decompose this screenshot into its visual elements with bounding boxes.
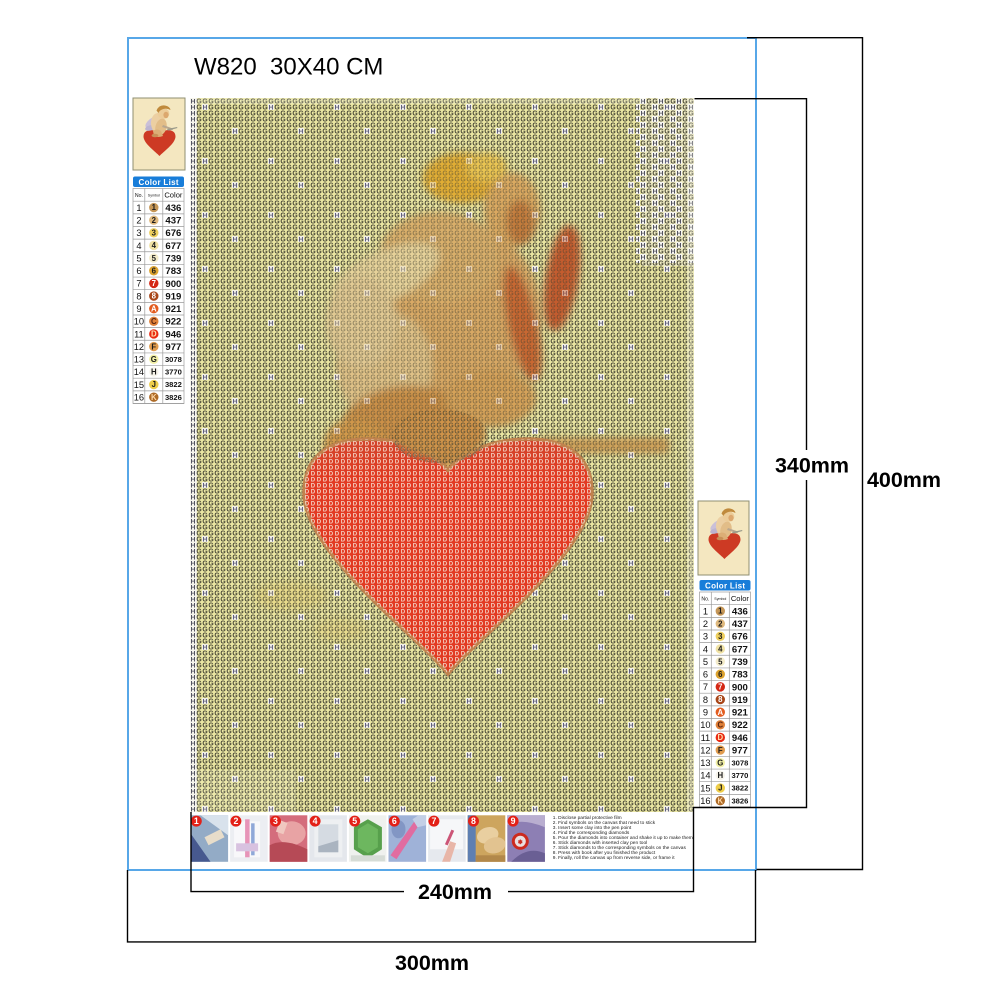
svg-text:946: 946 [165,329,181,340]
svg-text:K: K [717,796,723,805]
svg-text:1: 1 [136,203,141,213]
svg-text:677: 677 [165,241,181,252]
svg-text:919: 919 [732,695,748,706]
svg-text:7: 7 [152,279,156,288]
svg-text:1: 1 [152,203,157,212]
svg-text:400mm: 400mm [867,468,941,492]
svg-text:11: 11 [701,733,711,743]
svg-text:3822: 3822 [165,380,182,389]
svg-text:946: 946 [732,733,748,744]
svg-text:10: 10 [700,720,710,730]
svg-text:16: 16 [700,796,710,806]
svg-text:G: G [717,758,723,767]
svg-text:9: 9 [136,304,141,314]
svg-text:K: K [151,393,157,402]
svg-text:5: 5 [136,253,141,263]
svg-text:3: 3 [152,229,157,238]
svg-text:6: 6 [703,670,708,680]
svg-text:8: 8 [136,291,141,301]
svg-text:4: 4 [718,645,723,654]
svg-text:900: 900 [165,279,181,290]
svg-text:783: 783 [732,670,748,681]
svg-text:F: F [151,342,156,351]
svg-text:10: 10 [134,317,144,327]
svg-text:13: 13 [700,758,710,768]
svg-text:921: 921 [732,708,749,719]
svg-text:1: 1 [718,607,723,616]
svg-text:12: 12 [134,342,144,352]
svg-text:7: 7 [136,279,141,289]
svg-text:676: 676 [732,632,748,643]
svg-text:H: H [151,368,157,377]
svg-text:11: 11 [134,329,144,339]
svg-text:7: 7 [718,683,722,692]
svg-text:3078: 3078 [165,355,182,364]
svg-text:3826: 3826 [731,796,748,805]
svg-text:15: 15 [134,380,144,390]
svg-text:5: 5 [152,254,157,263]
svg-text:2: 2 [136,215,141,225]
svg-text:6: 6 [152,266,157,275]
svg-text:D: D [151,330,157,339]
svg-text:4: 4 [136,241,141,251]
svg-text:921: 921 [165,304,182,315]
svg-text:2: 2 [703,619,708,629]
svg-text:922: 922 [165,317,181,328]
svg-text:783: 783 [165,266,181,277]
svg-text:8: 8 [703,695,708,705]
svg-text:5: 5 [718,657,723,666]
svg-text:240mm: 240mm [418,880,492,904]
svg-text:6: 6 [136,266,141,276]
svg-text:Color List: Color List [705,582,745,591]
svg-text:H: H [717,771,723,780]
svg-text:4: 4 [703,644,708,654]
svg-text:900: 900 [732,682,748,693]
svg-text:300mm: 300mm [395,951,469,975]
svg-text:340mm: 340mm [775,454,849,478]
svg-text:W820 30X40 CM: W820 30X40 CM [194,54,383,81]
svg-text:Symbol: Symbol [148,193,160,197]
svg-text:Color: Color [731,594,750,603]
svg-text:D: D [717,733,723,742]
svg-text:9: 9 [703,707,708,717]
svg-text:3: 3 [136,228,141,238]
svg-text:922: 922 [732,720,748,731]
svg-text:739: 739 [732,657,748,668]
svg-text:No.: No. [135,193,143,199]
svg-text:No.: No. [701,596,709,602]
svg-text:437: 437 [165,216,181,227]
svg-text:13: 13 [134,355,144,365]
svg-text:G: G [151,355,157,364]
svg-text:14: 14 [134,367,144,377]
svg-text:8: 8 [718,695,723,704]
svg-text:2: 2 [152,216,157,225]
svg-text:16: 16 [134,392,144,402]
svg-text:436: 436 [732,606,748,617]
svg-text:6: 6 [718,670,723,679]
svg-text:5: 5 [703,657,708,667]
svg-text:J: J [152,380,156,389]
svg-text:739: 739 [165,254,181,265]
svg-text:677: 677 [732,644,748,655]
svg-text:Color: Color [164,191,183,200]
svg-text:F: F [718,746,723,755]
svg-text:Symbol: Symbol [714,597,726,601]
svg-text:3770: 3770 [165,368,182,377]
svg-text:C: C [717,721,723,730]
svg-text:7: 7 [703,682,708,692]
svg-text:676: 676 [165,228,181,239]
svg-text:3: 3 [718,632,723,641]
svg-text:8: 8 [152,292,157,301]
svg-text:15: 15 [700,783,710,793]
svg-text:3078: 3078 [731,758,748,767]
svg-text:2: 2 [718,619,723,628]
svg-text:3770: 3770 [731,771,748,780]
svg-text:4: 4 [152,241,157,250]
svg-text:977: 977 [165,342,181,353]
svg-text:3: 3 [703,632,708,642]
svg-text:12: 12 [700,745,710,755]
svg-text:437: 437 [732,619,748,630]
svg-text:436: 436 [165,203,181,214]
svg-text:J: J [718,784,722,793]
svg-text:919: 919 [165,291,181,302]
svg-text:14: 14 [700,771,710,781]
svg-text:1: 1 [703,606,708,616]
svg-text:A: A [151,304,157,313]
svg-text:977: 977 [732,746,748,757]
svg-text:A: A [717,708,723,717]
svg-text:3826: 3826 [165,393,182,402]
svg-text:3822: 3822 [731,784,748,793]
svg-text:C: C [151,317,157,326]
svg-text:Color List: Color List [139,178,179,187]
